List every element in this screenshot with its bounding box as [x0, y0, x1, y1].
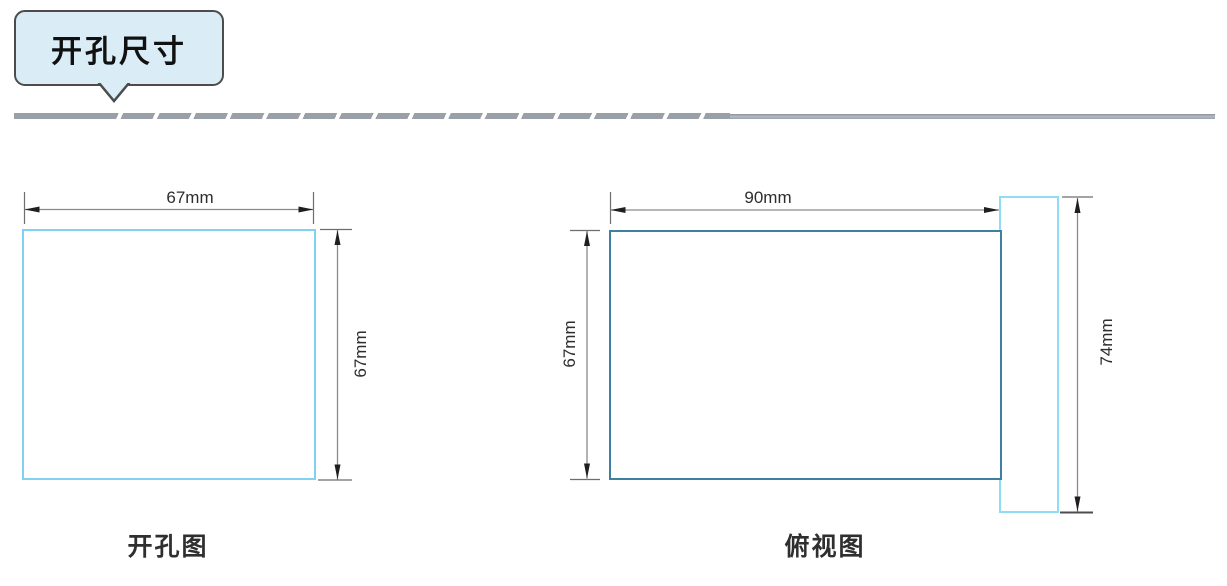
- panel-body-rect: [610, 231, 1001, 479]
- panel-width-dimension: 90mm: [611, 188, 1000, 224]
- cutout-caption: 开孔图: [18, 527, 318, 563]
- top-view-diagram: 90mm 67mm 74mm: [560, 188, 1116, 513]
- cutout-width-dimension: 67mm: [25, 188, 314, 224]
- panel-body-height-dimension: 67mm: [560, 231, 600, 480]
- dimension-label: 67mm: [166, 188, 213, 207]
- panel-overall-height-dimension: 74mm: [1060, 197, 1116, 513]
- dimension-diagrams: 67mm 67mm 90mm 67mm: [0, 0, 1227, 586]
- cutout-diagram: 67mm 67mm: [23, 188, 370, 480]
- cutout-height-dimension: 67mm: [318, 230, 370, 481]
- dimension-label: 67mm: [351, 330, 370, 377]
- dimension-label: 90mm: [744, 188, 791, 207]
- top-view-caption: 俯视图: [675, 527, 975, 563]
- dimension-label: 67mm: [560, 320, 579, 367]
- dimension-label: 74mm: [1097, 318, 1116, 365]
- panel-flange-rect: [1000, 197, 1058, 512]
- cutout-rect: [23, 230, 315, 479]
